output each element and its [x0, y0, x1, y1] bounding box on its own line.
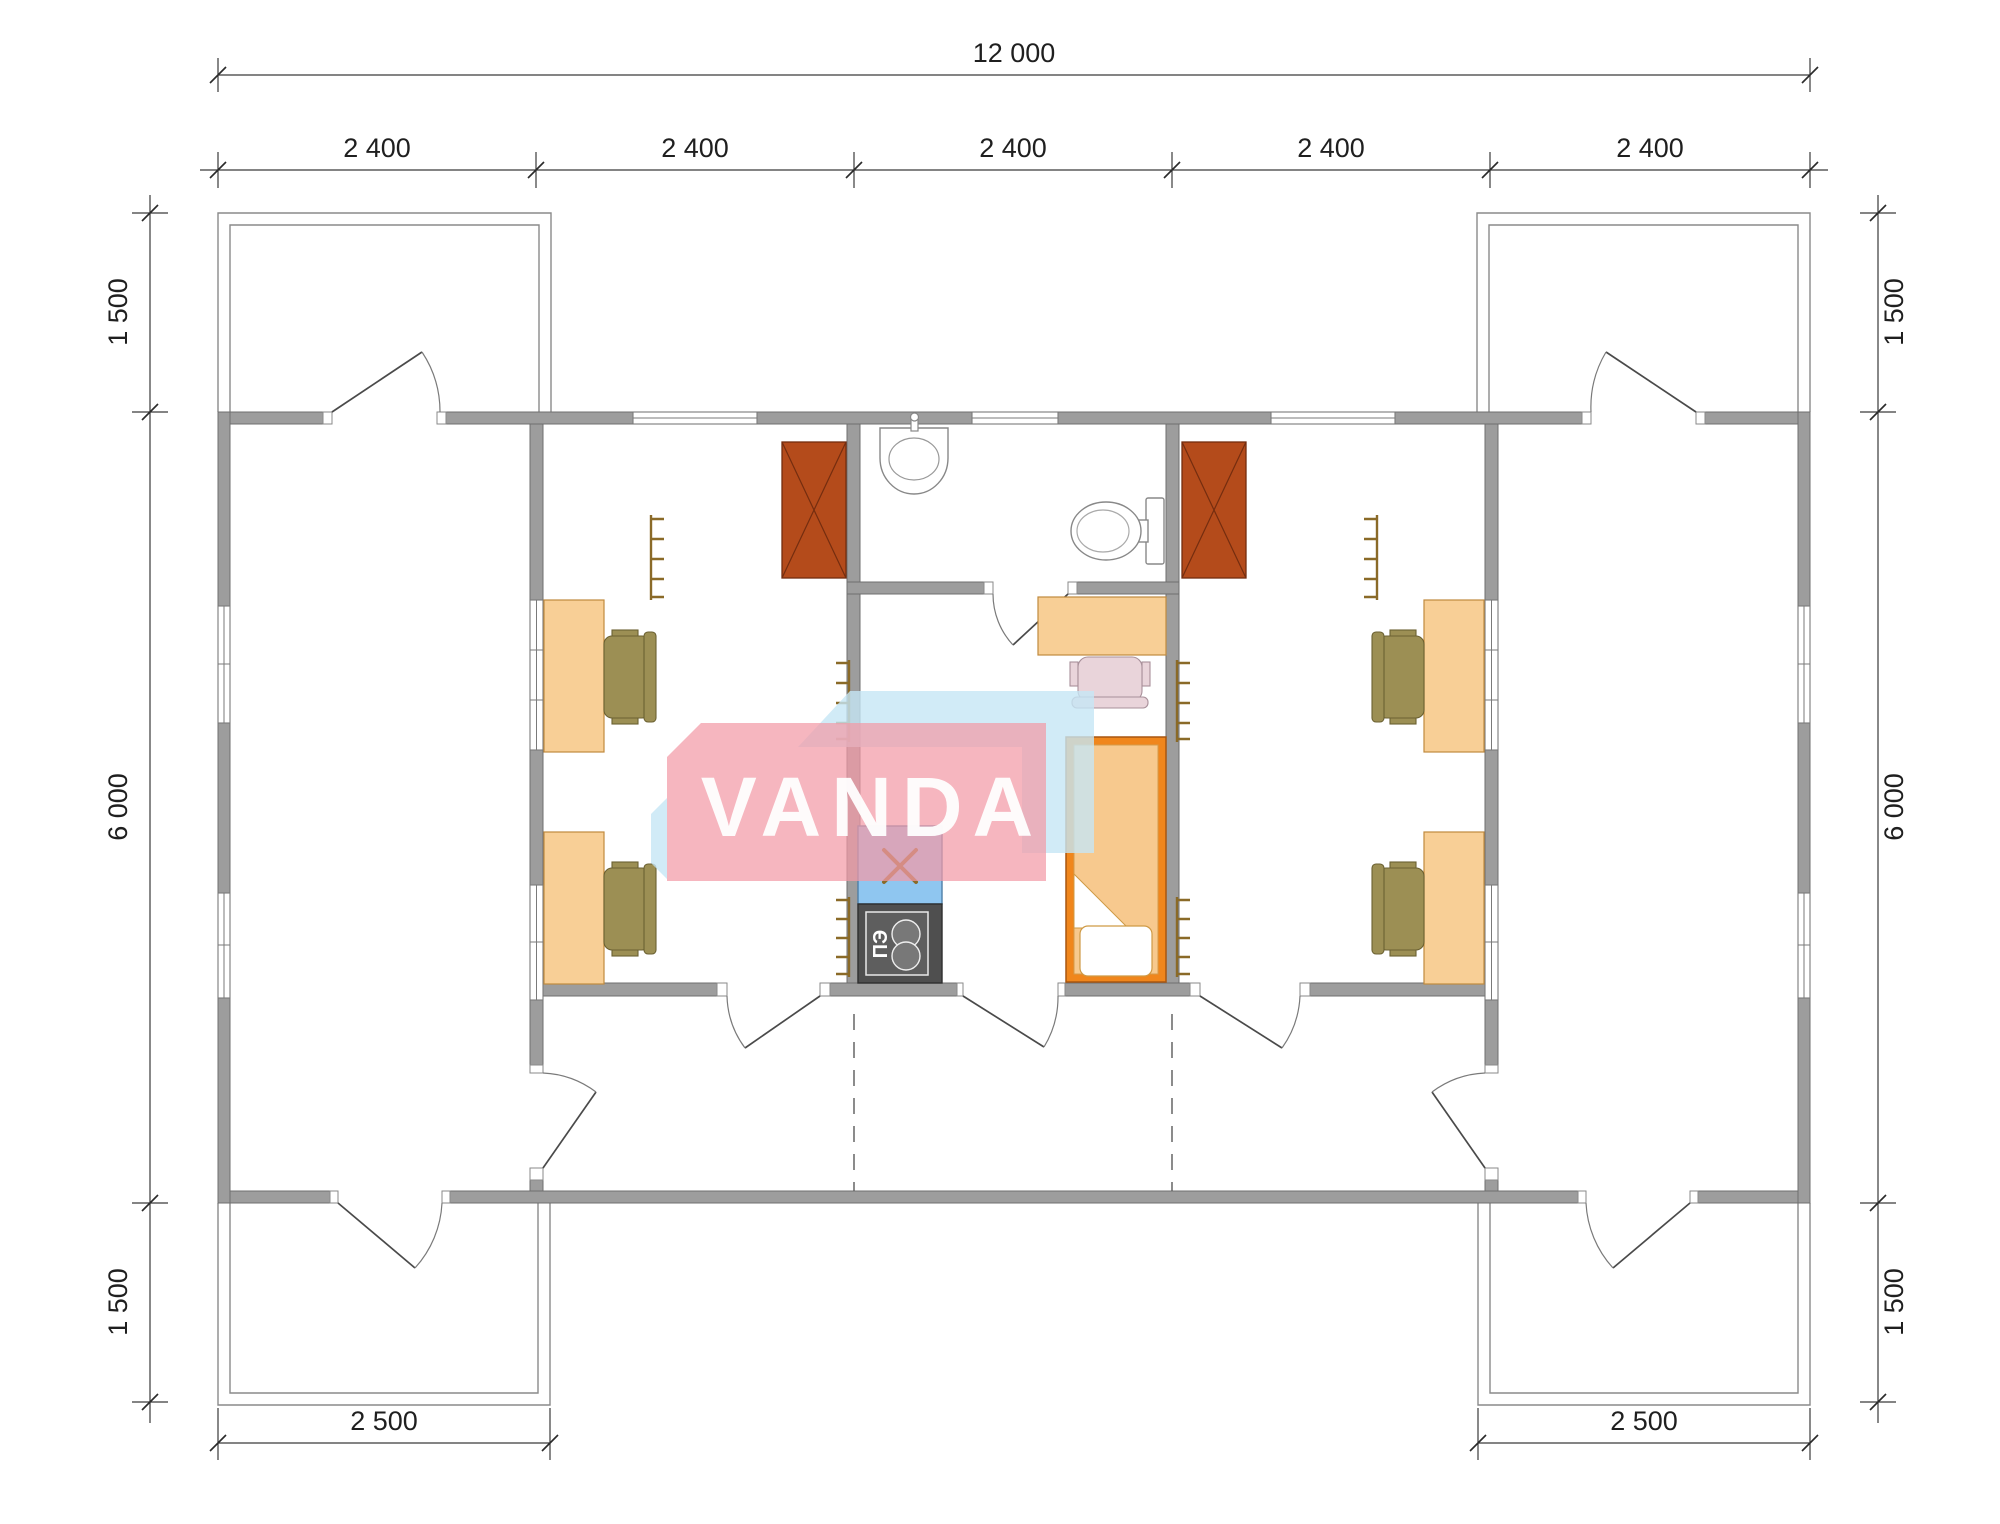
door-bottom-terrace-left	[338, 1203, 442, 1268]
bathroom-sink	[880, 413, 948, 494]
dim-label-right-top: 1 500	[1879, 278, 1909, 346]
window-interior-left-upper	[530, 600, 543, 750]
floor-plan-drawing: 12 000 2 400 2 400 2 400 2 400 2 400 1 5…	[0, 0, 2000, 1524]
stove-label: ПЭ	[870, 930, 892, 959]
window-top-bathroom	[972, 412, 1058, 424]
dimension-overall-width: 12 000	[210, 38, 1818, 92]
wall-hall-top	[543, 983, 1485, 996]
desk	[1424, 832, 1484, 984]
dim-label-module-3: 2 400	[979, 133, 1047, 163]
office-chair	[604, 630, 656, 724]
desk	[1424, 600, 1484, 752]
dim-label-left-top: 1 500	[103, 278, 133, 346]
terrace-top-right	[1477, 213, 1810, 412]
window-top-module4	[1271, 412, 1395, 424]
wall-bottom	[218, 1191, 1810, 1203]
door-bottom-terrace-right	[1586, 1203, 1690, 1268]
dim-label-module-4: 2 400	[1297, 133, 1365, 163]
terrace-bottom-right	[1478, 1203, 1810, 1405]
dim-label-left-bottom: 1 500	[103, 1268, 133, 1336]
wall-right	[1798, 412, 1810, 1203]
floor-plan-page: 12 000 2 400 2 400 2 400 2 400 2 400 1 5…	[0, 0, 2000, 1524]
vanda-watermark: VANDA	[651, 691, 1094, 881]
door-room-right-office	[1200, 996, 1300, 1048]
dim-label-module-2: 2 400	[661, 133, 729, 163]
wardrobe-right	[1182, 442, 1246, 578]
electric-stove: ПЭ	[858, 904, 942, 983]
module-joint-lines	[854, 1014, 1172, 1191]
dim-label-right-bottom: 1 500	[1879, 1268, 1909, 1336]
dim-label-terrace-bl: 2 500	[350, 1406, 418, 1436]
door-living-room	[963, 996, 1058, 1047]
dimension-modules: 2 400 2 400 2 400 2 400 2 400	[200, 133, 1828, 188]
window-left-lower	[218, 893, 230, 998]
window-right-upper	[1798, 606, 1810, 723]
dim-label-module-5: 2 400	[1616, 133, 1684, 163]
office-chair	[604, 862, 656, 956]
wall-bathroom-bottom	[847, 582, 1179, 594]
office-chair	[1372, 630, 1424, 724]
dim-label-right-middle: 6 000	[1879, 773, 1909, 841]
door-top-terrace-left	[332, 352, 440, 412]
window-left-upper	[218, 606, 230, 723]
window-top-module2	[633, 412, 757, 424]
wall-interior-left	[530, 424, 543, 1191]
dim-label-module-1: 2 400	[343, 133, 411, 163]
radiator	[1364, 515, 1377, 600]
wardrobe-left	[782, 442, 846, 578]
dim-label-left-middle: 6 000	[103, 773, 133, 841]
door-hall-left-room	[543, 1073, 596, 1168]
window-right-lower	[1798, 893, 1810, 998]
office-chair	[1372, 862, 1424, 956]
desk	[544, 832, 604, 984]
door-top-terrace-right	[1591, 352, 1696, 412]
toilet	[1071, 498, 1164, 564]
wall-interior-right	[1485, 424, 1498, 1191]
dimension-bottom-right: 2 500	[1470, 1406, 1818, 1460]
window-interior-right-lower	[1485, 885, 1498, 1000]
window-interior-right-upper	[1485, 600, 1498, 750]
dim-label-overall: 12 000	[973, 38, 1056, 68]
terrace-bottom-left	[218, 1203, 550, 1405]
dimension-left-side: 1 500 6 000 1 500	[103, 195, 168, 1423]
wall-left	[218, 412, 230, 1203]
watermark-brand-text: VANDA	[701, 760, 1043, 854]
door-hall-right-room	[1432, 1073, 1485, 1168]
pillow	[1080, 926, 1152, 976]
dimension-right-side: 1 500 6 000 1 500	[1860, 195, 1909, 1423]
radiator	[651, 515, 664, 600]
desk	[544, 600, 604, 752]
door-room-left-office	[727, 996, 820, 1048]
window-interior-left-lower	[530, 885, 543, 1000]
dim-label-terrace-br: 2 500	[1610, 1406, 1678, 1436]
dimension-bottom-left: 2 500	[210, 1406, 558, 1460]
desk	[1038, 597, 1166, 655]
terrace-top-left	[218, 213, 551, 412]
